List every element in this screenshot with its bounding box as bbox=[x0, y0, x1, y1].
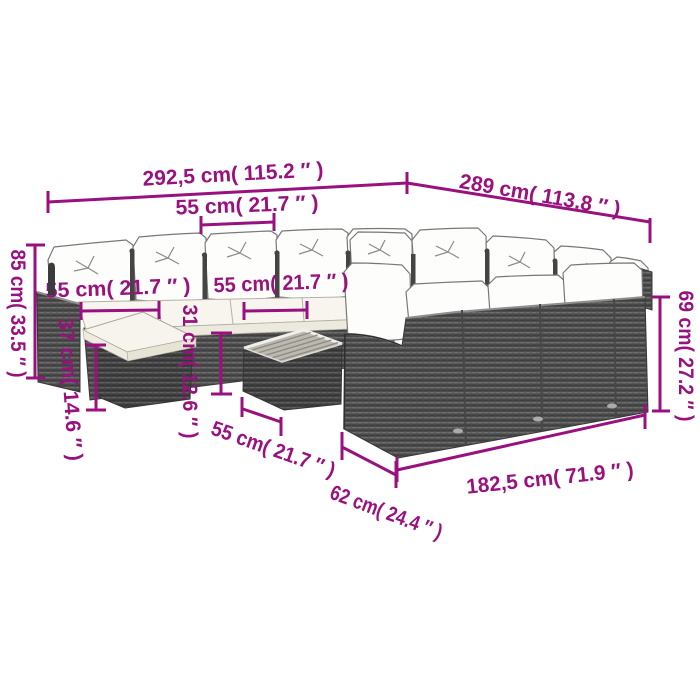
svg-text:69 cm( 27.2 ″ ): 69 cm( 27.2 ″ ) bbox=[674, 291, 697, 422]
svg-text:31 cm( 12.6 ″ ): 31 cm( 12.6 ″ ) bbox=[178, 305, 201, 439]
svg-text:55 cm( 21.7 ″ ): 55 cm( 21.7 ″ ) bbox=[213, 270, 349, 298]
svg-text:85 cm( 33.5 ″ ): 85 cm( 33.5 ″ ) bbox=[6, 250, 29, 378]
